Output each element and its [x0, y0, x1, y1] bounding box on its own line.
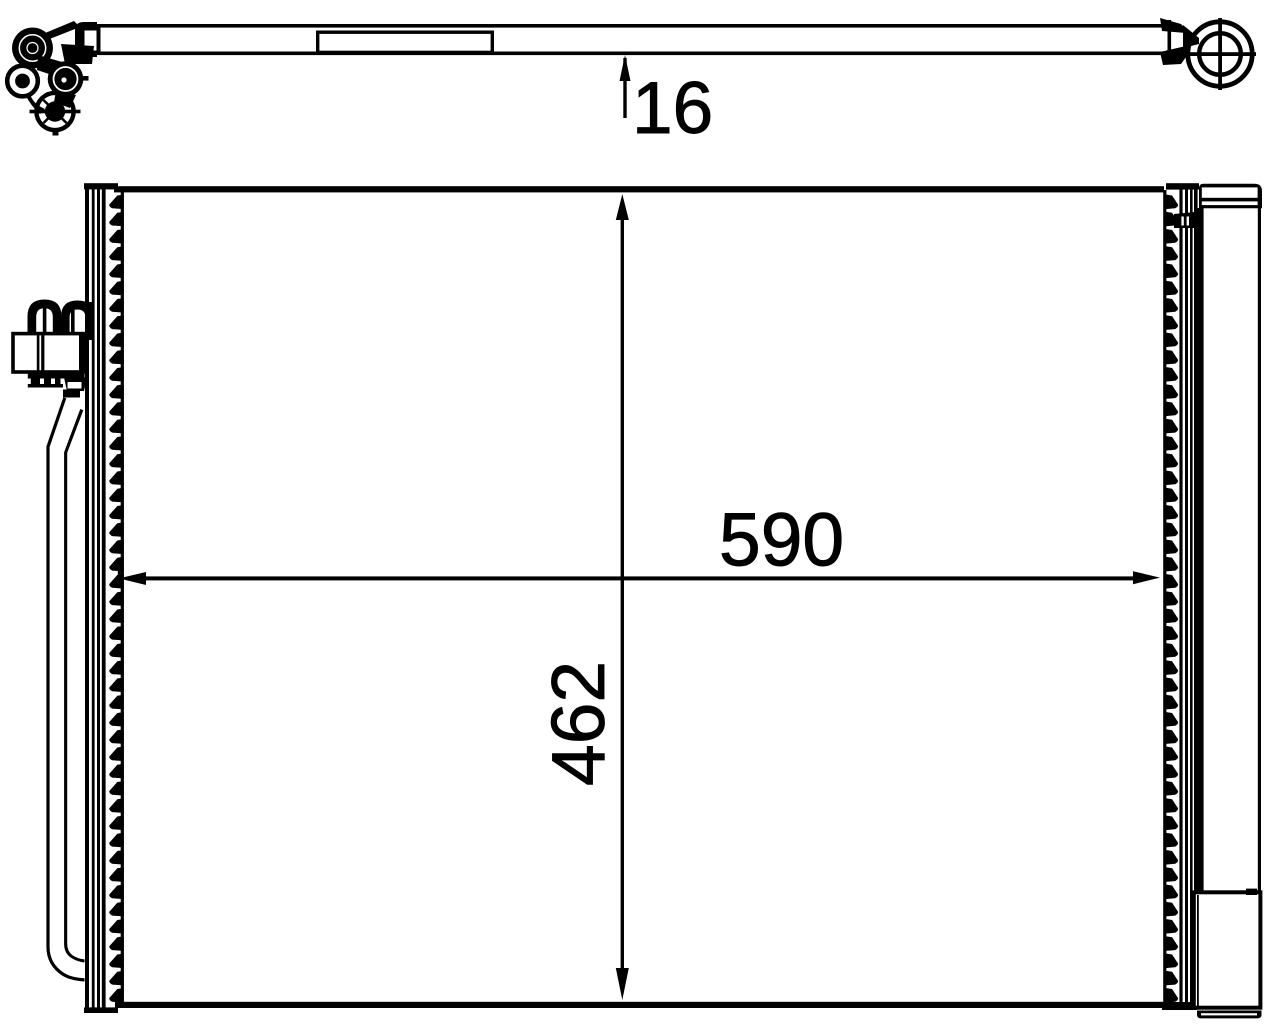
svg-text:590: 590: [719, 498, 844, 582]
svg-text:16: 16: [632, 68, 713, 149]
svg-text:462: 462: [536, 661, 620, 786]
